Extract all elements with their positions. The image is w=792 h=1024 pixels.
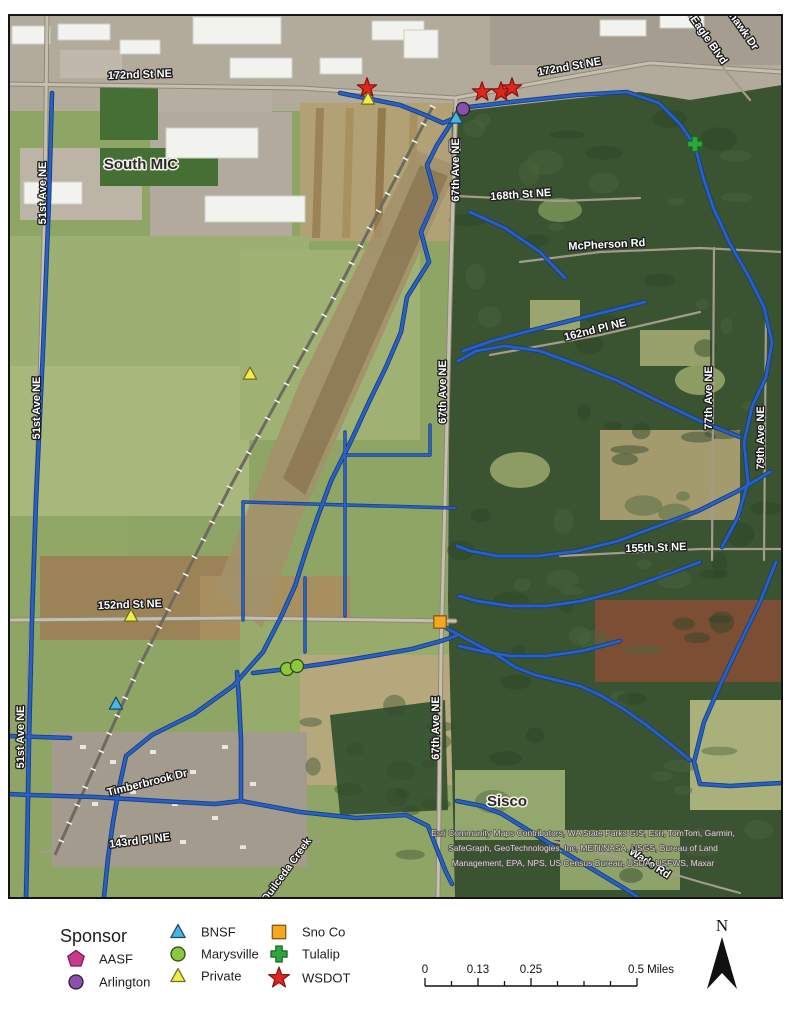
cross-icon bbox=[271, 946, 287, 962]
legend-item-label: Tulalip bbox=[302, 947, 340, 962]
road-label: 172nd St NE bbox=[108, 68, 173, 82]
north-arrow-glyph bbox=[707, 937, 737, 989]
legend-item-tulalip: Tulalip bbox=[271, 946, 340, 962]
road-label: 51st Ave NE bbox=[31, 377, 43, 440]
legend-item-sno-co: Sno Co bbox=[272, 925, 345, 940]
road-label: 155th St NE bbox=[625, 541, 687, 555]
legend-item-wsdot: WSDOT bbox=[269, 967, 351, 987]
legend-item-marysville: Marysville bbox=[171, 947, 259, 962]
north-arrow: N bbox=[707, 916, 737, 989]
north-label: N bbox=[716, 916, 728, 935]
marker-arlington bbox=[457, 103, 470, 116]
legend-item-label: Sno Co bbox=[302, 925, 345, 940]
triangle-icon bbox=[171, 969, 185, 982]
scale-bar: 00.130.250.5 Miles bbox=[422, 964, 674, 986]
scalebar-label: 0.5 Miles bbox=[628, 964, 674, 976]
road-label: 67th Ave NE bbox=[437, 360, 449, 423]
legend-item-label: AASF bbox=[99, 952, 133, 967]
scalebar-label: 0 bbox=[422, 964, 428, 976]
pentagon-icon bbox=[68, 950, 84, 966]
legend-item-label: Arlington bbox=[99, 975, 150, 990]
square-icon bbox=[272, 925, 285, 938]
marker-sno-co bbox=[434, 616, 446, 628]
attribution-line: Esri Community Maps Contributors, WA Sta… bbox=[431, 828, 735, 838]
page: 172nd St NE172nd St NE51st Ave NE67th Av… bbox=[0, 0, 792, 1024]
road-label: 79th Ave NE bbox=[755, 406, 767, 469]
road-label: 77th Ave NE bbox=[703, 366, 715, 429]
legend-title: Sponsor bbox=[60, 926, 127, 946]
place-label: South MIC bbox=[104, 156, 178, 173]
scalebar-label: 0.13 bbox=[467, 964, 489, 976]
legend-item-label: Private bbox=[201, 969, 241, 984]
legend-item-aasf: AASF bbox=[68, 950, 133, 966]
road-label: 51st Ave NE bbox=[37, 162, 49, 225]
scalebar-label: 0.25 bbox=[520, 964, 542, 976]
map-svg: 172nd St NE172nd St NE51st Ave NE67th Av… bbox=[0, 0, 792, 1024]
legend-item-label: WSDOT bbox=[302, 971, 350, 986]
circle-icon bbox=[69, 975, 83, 989]
legend-item-private: Private bbox=[171, 969, 242, 984]
legend-item-label: BNSF bbox=[201, 925, 236, 940]
star-icon bbox=[269, 967, 290, 987]
road-label: 67th Ave NE bbox=[450, 138, 462, 201]
map-canvas: 172nd St NE172nd St NE51st Ave NE67th Av… bbox=[9, 10, 783, 904]
legend-item-bnsf: BNSF bbox=[171, 925, 236, 940]
attribution-line: Management, EPA, NPS, US Census Bureau, … bbox=[452, 858, 715, 868]
attribution-line: SafeGraph, GeoTechnologies, Inc, METI/NA… bbox=[448, 843, 718, 853]
legend: Sponsor AASFArlingtonBNSFMarysvillePriva… bbox=[60, 925, 350, 990]
triangle-icon bbox=[171, 925, 185, 938]
road-label: 51st Ave NE bbox=[15, 706, 27, 769]
road-label: 67th Ave NE bbox=[430, 696, 442, 759]
legend-item-arlington: Arlington bbox=[69, 975, 150, 990]
circle-icon bbox=[171, 947, 185, 961]
legend-item-label: Marysville bbox=[201, 947, 259, 962]
place-label: Sisco bbox=[487, 793, 527, 810]
marker-marysville bbox=[291, 660, 304, 673]
